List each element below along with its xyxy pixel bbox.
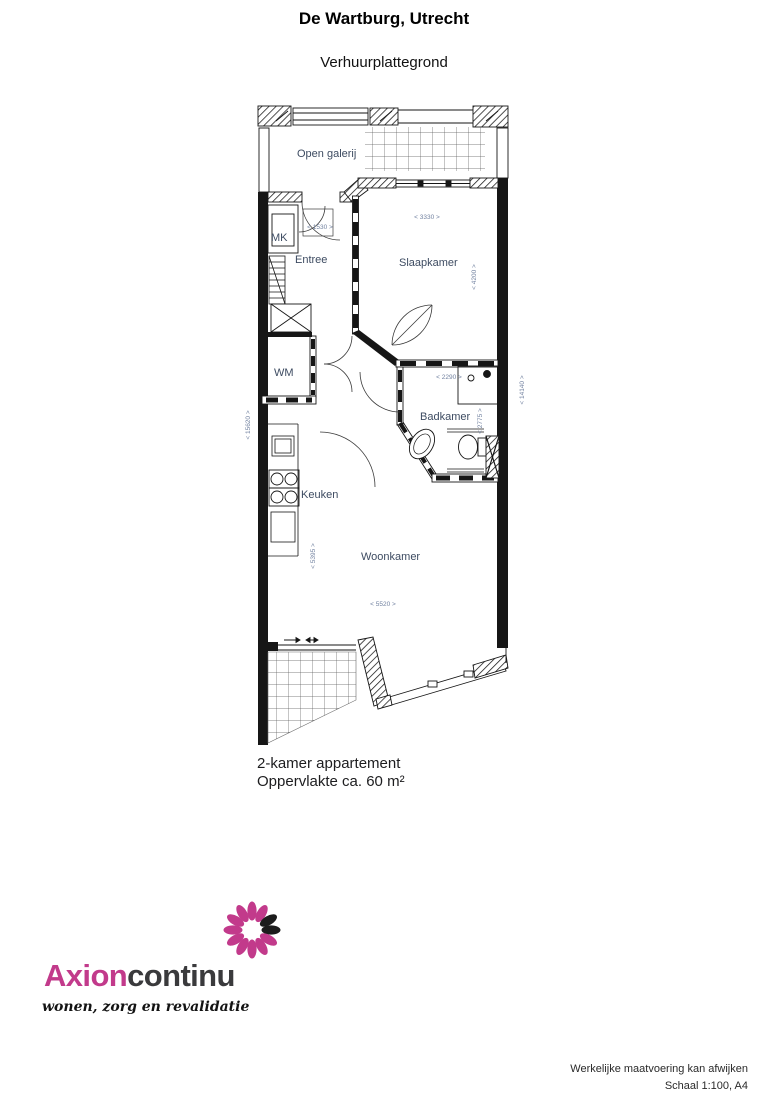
dim-15620: < 15620 > xyxy=(245,410,252,439)
page-subtitle: Verhuurplattegrond xyxy=(0,54,768,71)
footer-notes: Werkelijke maatvoering kan afwijken Scha… xyxy=(570,1061,748,1095)
mk-cupboard xyxy=(268,205,298,253)
stove-icon xyxy=(269,470,299,506)
shaft-duct xyxy=(271,304,311,332)
front-door-arc xyxy=(302,202,340,240)
logo-flower-icon xyxy=(220,898,284,962)
room-label-woonkamer: Woonkamer xyxy=(361,551,420,563)
dim-4200: < 4200 > xyxy=(471,264,478,290)
badkamer-door-arc xyxy=(360,372,400,412)
hall-door-arc xyxy=(320,432,375,487)
footer-disclaimer: Werkelijke maatvoering kan afwijken xyxy=(570,1061,748,1078)
logo-petal xyxy=(262,925,281,934)
toilet-icon xyxy=(459,435,489,459)
washbasin-counter xyxy=(458,366,498,404)
logo-tagline: wonen, zorg en revalidatie xyxy=(42,999,249,1015)
logo-word-secondary: continu xyxy=(127,958,235,993)
shaft-louvre xyxy=(269,256,285,304)
dim-2775: < 2775 > xyxy=(477,408,484,434)
logo-petal xyxy=(247,902,256,921)
footer-scale: Schaal 1:100, A4 xyxy=(570,1078,748,1095)
gallery-floor-grid xyxy=(365,127,485,171)
room-label-badkamer: Badkamer xyxy=(420,411,470,423)
balcony-balustrade xyxy=(376,648,508,709)
dim-14140: < 14140 > xyxy=(519,375,526,404)
wm-door-arc-top xyxy=(324,336,352,364)
balcony-pier xyxy=(358,637,389,706)
room-label-wm: WM xyxy=(274,367,294,379)
floorplan: Open galerij MK Entree Slaapkamer WM Bad… xyxy=(233,92,553,762)
balcony-floor-grid xyxy=(268,652,356,743)
wm-door-arc-bottom xyxy=(324,364,352,392)
room-label-mk: MK xyxy=(271,232,288,244)
room-label-entree: Entree xyxy=(295,254,327,266)
wall-entree-slaapkamer xyxy=(353,196,359,334)
dim-3330: < 3330 > xyxy=(414,214,440,221)
wall-left xyxy=(258,192,268,745)
wall-diagonal-slaapkamer xyxy=(352,330,399,366)
dim-1530: < 1530 > xyxy=(307,224,333,231)
wall-badkamer-left xyxy=(397,367,403,425)
apartment-area: Oppervlakte ca. 60 m² xyxy=(257,773,405,791)
wall-right xyxy=(497,178,508,648)
wall-woonkamer-bottom xyxy=(258,638,356,652)
kitchen-counter xyxy=(268,424,298,556)
dim-5520: < 5520 > xyxy=(370,601,396,608)
dim-5395: < 5395 > xyxy=(310,543,317,569)
room-label-open-galerij: Open galerij xyxy=(297,148,356,160)
apartment-caption: 2-kamer appartement Oppervlakte ca. 60 m… xyxy=(257,755,405,791)
logo-petal xyxy=(224,925,243,934)
logo-word-primary: Axion xyxy=(44,958,127,993)
apartment-type: 2-kamer appartement xyxy=(257,755,405,773)
room-label-keuken: Keuken xyxy=(301,489,338,501)
slide-arrow-icon xyxy=(284,638,318,643)
facade-band xyxy=(258,106,508,127)
room-label-slaapkamer: Slaapkamer xyxy=(399,257,458,269)
dim-2290: < 2290 > xyxy=(436,374,462,381)
logo-wordmark: Axioncontinu xyxy=(44,958,235,994)
page-title: De Wartburg, Utrecht xyxy=(0,9,768,29)
shower-shaft xyxy=(486,436,499,478)
logo-petal xyxy=(247,940,256,959)
wall-top-slaapkamer xyxy=(358,178,498,188)
